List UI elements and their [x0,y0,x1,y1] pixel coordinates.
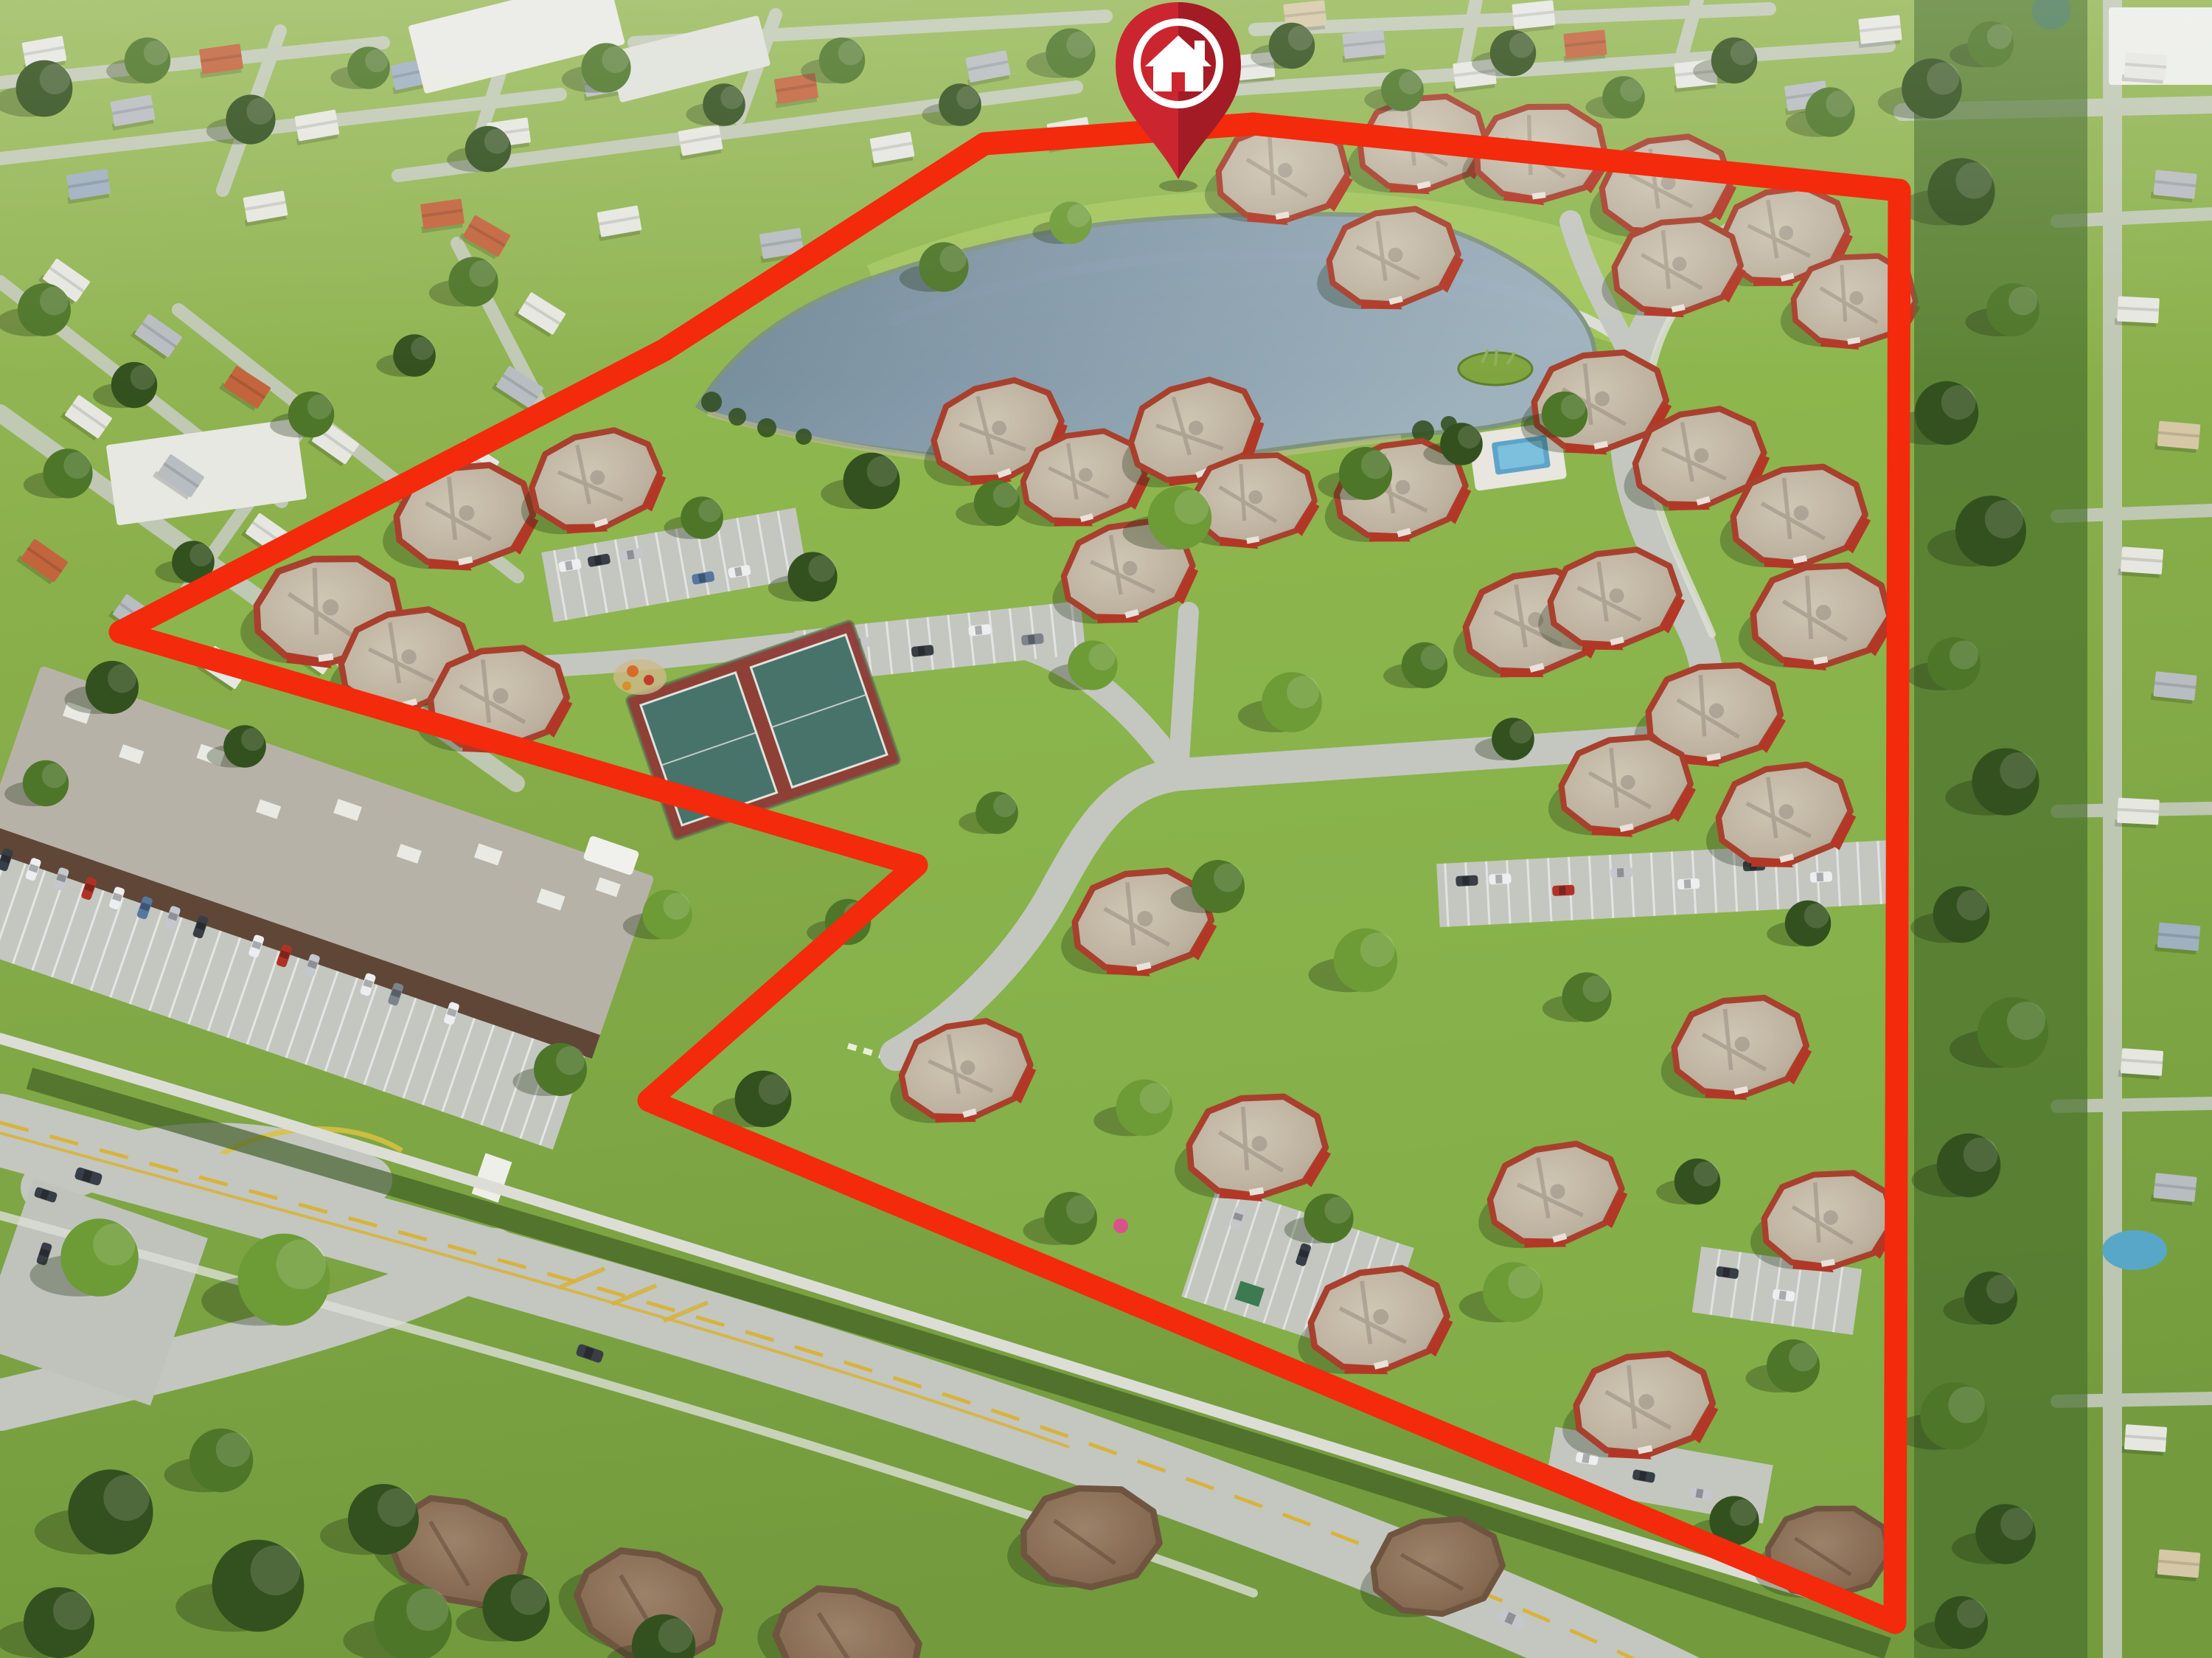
playground [613,659,667,695]
house-door [1172,72,1185,91]
aerial-photo-canvas [0,0,2212,1658]
pin-shadow [1159,180,1197,192]
aerial-photo [0,0,2212,1658]
backyard-pool [2102,1230,2167,1270]
patio-umbrella [1113,1218,1128,1233]
